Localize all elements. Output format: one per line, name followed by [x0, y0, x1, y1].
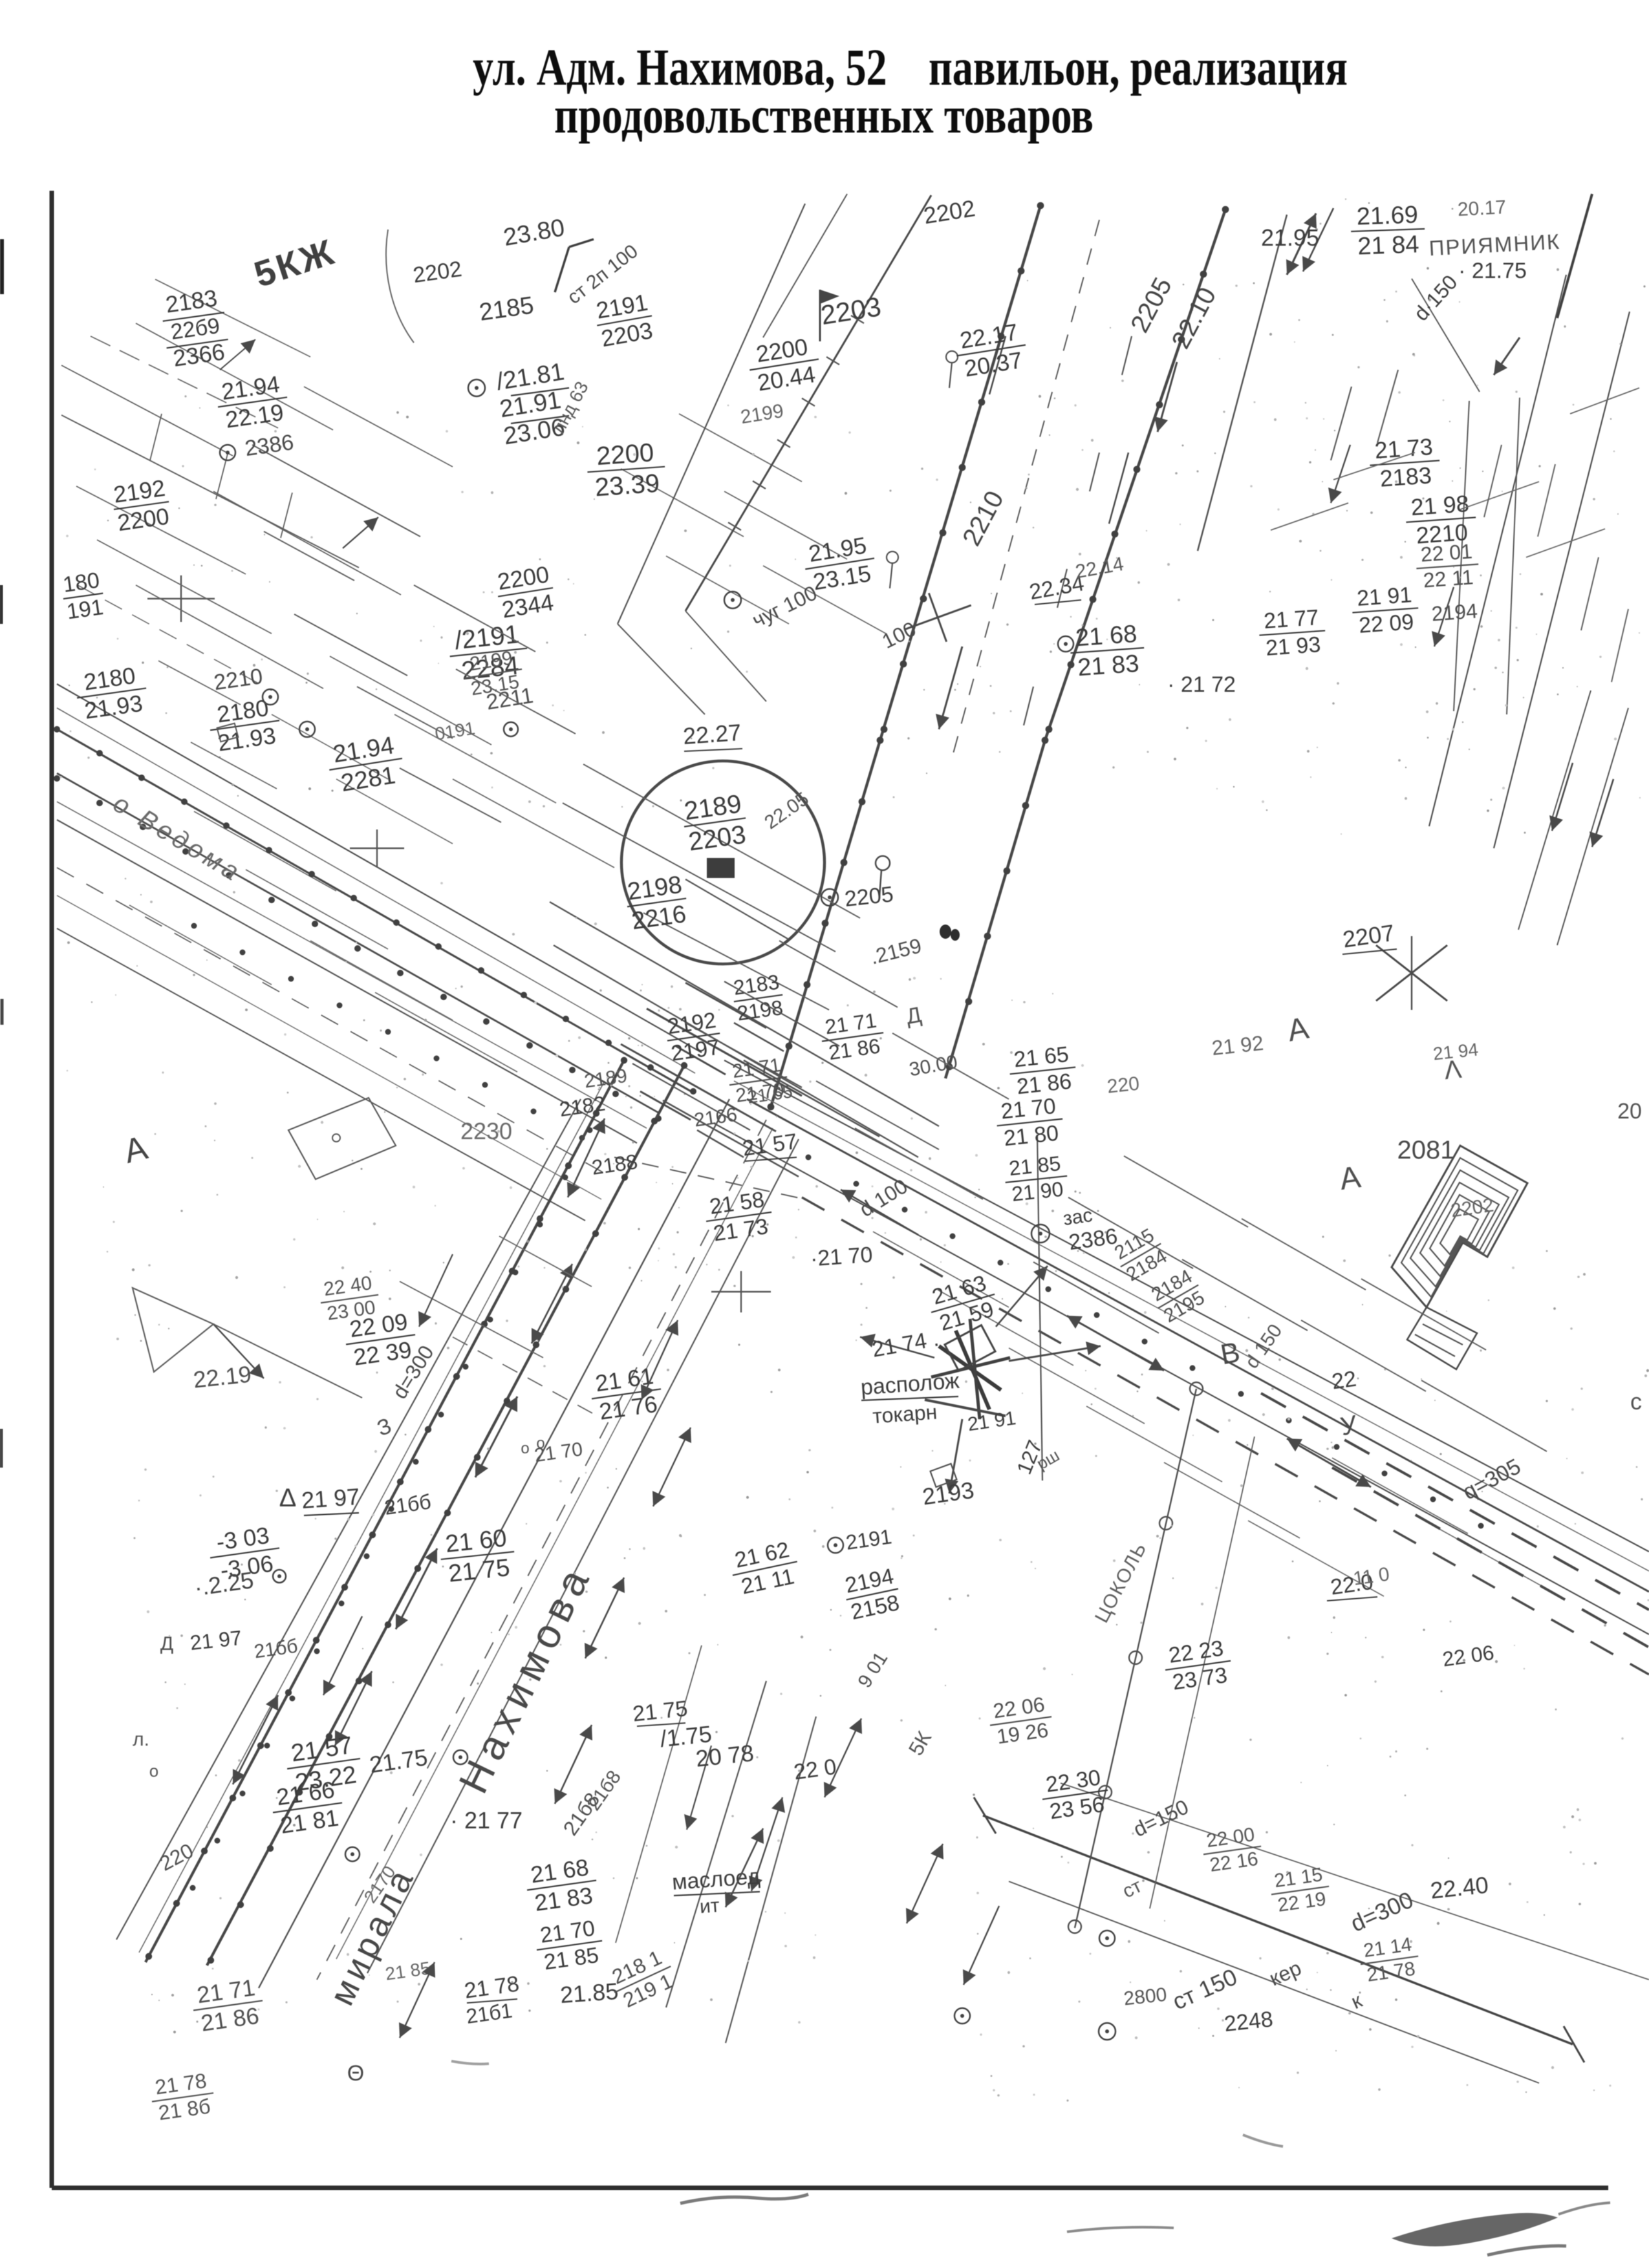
svg-text:продовольственных товаров: продовольственных товаров [554, 87, 1094, 144]
svg-text:21 97: 21 97 [301, 1483, 361, 1514]
svg-text:Нахимова: Нахимова [449, 1556, 601, 1801]
svg-text:Д: Д [904, 1002, 923, 1029]
svg-text:2210: 2210 [212, 664, 264, 695]
svg-text:21.69: 21.69 [1356, 201, 1419, 230]
svg-text:22 0: 22 0 [792, 1755, 838, 1785]
svg-text:2216: 2216 [630, 901, 688, 935]
svg-text:22 06: 22 06 [1441, 1641, 1495, 1671]
svg-text:22.14: 22.14 [1074, 553, 1126, 583]
svg-text:о Ведома: о Ведома [108, 789, 247, 888]
svg-text:21 83: 21 83 [533, 1882, 594, 1916]
svg-text:20.17: 20.17 [1457, 197, 1507, 220]
svg-text:21 8б: 21 8б [157, 2094, 212, 2124]
svg-text:21б8: 21б8 [583, 1767, 625, 1815]
svg-text:с: с [1630, 1388, 1642, 1415]
svg-text:d=300: d=300 [1346, 1886, 1417, 1937]
svg-text:21.93: 21.93 [83, 690, 144, 724]
svg-text:ст 150: ст 150 [1169, 1963, 1241, 2015]
svg-text:21 80: 21 80 [1002, 1121, 1060, 1151]
svg-text:2199: 2199 [739, 400, 785, 428]
svg-text:2166: 2166 [693, 1104, 738, 1131]
svg-text:21 85: 21 85 [1008, 1151, 1062, 1180]
svg-text:ЦОКОЛЬ: ЦОКОЛЬ [1091, 1539, 1151, 1627]
svg-text:22 09: 22 09 [1358, 610, 1415, 638]
svg-text:21 75: 21 75 [447, 1554, 511, 1588]
svg-text:19 26: 19 26 [995, 1718, 1050, 1748]
svg-text:21 65: 21 65 [1013, 1042, 1070, 1073]
svg-text:21.75: 21.75 [368, 1744, 429, 1778]
svg-text:21 77: 21 77 [1263, 605, 1320, 634]
svg-text:располож: располож [860, 1369, 960, 1400]
svg-text:21 91: 21 91 [966, 1407, 1017, 1435]
svg-text:2205: 2205 [1125, 273, 1178, 337]
svg-text:маслоед: маслоед [671, 1864, 761, 1894]
svg-text:220: 220 [1106, 1073, 1140, 1098]
svg-text:21 86: 21 86 [199, 2002, 261, 2037]
svg-text:21 78: 21 78 [463, 1971, 521, 2003]
svg-text:Д: Д [160, 1633, 173, 1654]
svg-text:2202: 2202 [1449, 1195, 1495, 1222]
svg-text:ПРИЯМНИК: ПРИЯМНИК [1428, 230, 1561, 261]
svg-text:220: 220 [156, 1839, 197, 1876]
svg-text:d 150: d 150 [1241, 1320, 1286, 1372]
svg-text:21 73: 21 73 [1374, 433, 1434, 464]
svg-text:21 75: 21 75 [632, 1696, 689, 1727]
svg-text:22.19: 22.19 [192, 1360, 253, 1393]
svg-text:2210: 2210 [957, 486, 1009, 550]
svg-text:22.05: 22.05 [760, 788, 812, 833]
svg-text:9 01: 9 01 [854, 1648, 892, 1691]
svg-text:2200: 2200 [596, 438, 655, 471]
svg-text:21 93: 21 93 [1265, 632, 1322, 661]
svg-text:о: о [149, 1761, 158, 1781]
svg-text:22.40: 22.40 [1429, 1871, 1490, 1903]
svg-text:2800: 2800 [1123, 1984, 1168, 2010]
svg-text:21 92: 21 92 [1211, 1031, 1264, 1060]
svg-text:о: о [521, 1440, 529, 1457]
svg-text:2205: 2205 [843, 882, 894, 912]
svg-text:Δ: Δ [279, 1484, 297, 1512]
svg-text:2202: 2202 [411, 257, 463, 288]
svg-text:2194: 2194 [1430, 599, 1478, 626]
svg-text:· 21 77: · 21 77 [450, 1807, 523, 1834]
svg-text:21.85: 21.85 [559, 1978, 620, 2008]
svg-text:2230: 2230 [460, 1118, 512, 1144]
svg-text:2386: 2386 [243, 430, 295, 461]
svg-text:21 90: 21 90 [1011, 1177, 1064, 1206]
svg-text:А: А [1337, 1160, 1363, 1197]
svg-text:21 57: 21 57 [289, 1732, 354, 1768]
svg-text:21 98: 21 98 [1410, 490, 1470, 520]
svg-text:2344: 2344 [500, 589, 555, 623]
svg-text:л.: л. [133, 1729, 149, 1750]
svg-text:23.39: 23.39 [594, 469, 661, 502]
svg-text:ст: ст [1119, 1875, 1146, 1902]
svg-text:22 11: 22 11 [1423, 565, 1474, 592]
svg-text:зас: зас [1062, 1204, 1094, 1230]
svg-text:2248: 2248 [1223, 2007, 1274, 2037]
svg-text:кер: кер [1266, 1956, 1304, 1990]
svg-text:2182: 2182 [558, 1091, 607, 1121]
svg-text:21 83: 21 83 [1077, 650, 1140, 682]
svg-text:к: к [1348, 1988, 1366, 2013]
svg-text:А: А [120, 1129, 151, 1171]
svg-text:2188: 2188 [590, 1150, 640, 1179]
svg-text:20: 20 [1617, 1099, 1642, 1124]
svg-text:22.27: 22.27 [682, 719, 742, 749]
svg-text:21бб: 21бб [383, 1490, 433, 1519]
svg-text:100: 100 [878, 617, 920, 653]
svg-text:/1.75: /1.75 [659, 1720, 713, 1752]
svg-text:2081: 2081 [1397, 1136, 1455, 1164]
svg-text:21 81: 21 81 [279, 1804, 340, 1839]
svg-text:11 0: 11 0 [1352, 1563, 1391, 1589]
svg-text:21 76: 21 76 [598, 1391, 659, 1425]
svg-text:21 94: 21 94 [1432, 1039, 1480, 1064]
svg-text:2202: 2202 [921, 195, 977, 229]
svg-text:21бб: 21бб [253, 1636, 299, 1663]
svg-text:2183: 2183 [164, 284, 219, 318]
svg-text:21 97: 21 97 [189, 1626, 242, 1654]
svg-text:21 91: 21 91 [1356, 583, 1413, 611]
svg-text:21 68: 21 68 [1075, 621, 1138, 652]
svg-text:d·150: d·150 [1409, 270, 1462, 325]
svg-text:2193: 2193 [921, 1477, 976, 1510]
svg-text:22 01: 22 01 [1420, 539, 1473, 566]
svg-text:В: В [1218, 1336, 1242, 1371]
svg-text:чуг 100: чуг 100 [748, 581, 821, 632]
svg-text:·.2.25: ·.2.25 [193, 1567, 255, 1601]
svg-text:· 21 72: · 21 72 [1167, 672, 1236, 697]
svg-text:191: 191 [65, 595, 105, 625]
svg-text:5КЖ: 5КЖ [249, 231, 340, 295]
svg-text:22.10: 22.10 [1167, 283, 1222, 353]
svg-text:токарн: токарн [872, 1400, 938, 1428]
svg-text:о: о [536, 1435, 544, 1452]
svg-text:21.95: 21.95 [1261, 224, 1319, 251]
svg-text:21.93: 21.93 [216, 722, 277, 756]
svg-text:21 84: 21 84 [1357, 231, 1420, 260]
svg-text:· 21.75: · 21.75 [1458, 259, 1527, 283]
svg-text:2386: 2386 [1067, 1224, 1119, 1255]
svg-text:q=305: q=305 [1459, 1454, 1525, 1504]
svg-text:180: 180 [61, 568, 101, 597]
svg-text:Θ: Θ [347, 2061, 364, 2086]
svg-text:d=150: d=150 [1130, 1795, 1192, 1841]
svg-text:2189: 2189 [583, 1065, 629, 1093]
svg-text:23.80: 23.80 [501, 214, 566, 251]
svg-text:ит: ит [699, 1895, 720, 1918]
svg-text:А: А [1285, 1011, 1311, 1049]
svg-text:21 86: 21 86 [827, 1034, 881, 1064]
svg-text:·21 70: ·21 70 [810, 1243, 874, 1272]
svg-text:22.19: 22.19 [224, 399, 285, 433]
svg-text:5К: 5К [904, 1727, 936, 1759]
svg-text:2183: 2183 [1379, 462, 1432, 491]
svg-text:З: З [374, 1413, 394, 1441]
svg-text:.2159: .2159 [868, 934, 923, 968]
svg-text:22: 22 [1330, 1367, 1358, 1395]
svg-text:2185: 2185 [478, 292, 536, 326]
svg-text:2183: 2183 [732, 970, 781, 1000]
svg-text:2191: 2191 [845, 1524, 894, 1554]
svg-text:2207: 2207 [1341, 919, 1396, 953]
